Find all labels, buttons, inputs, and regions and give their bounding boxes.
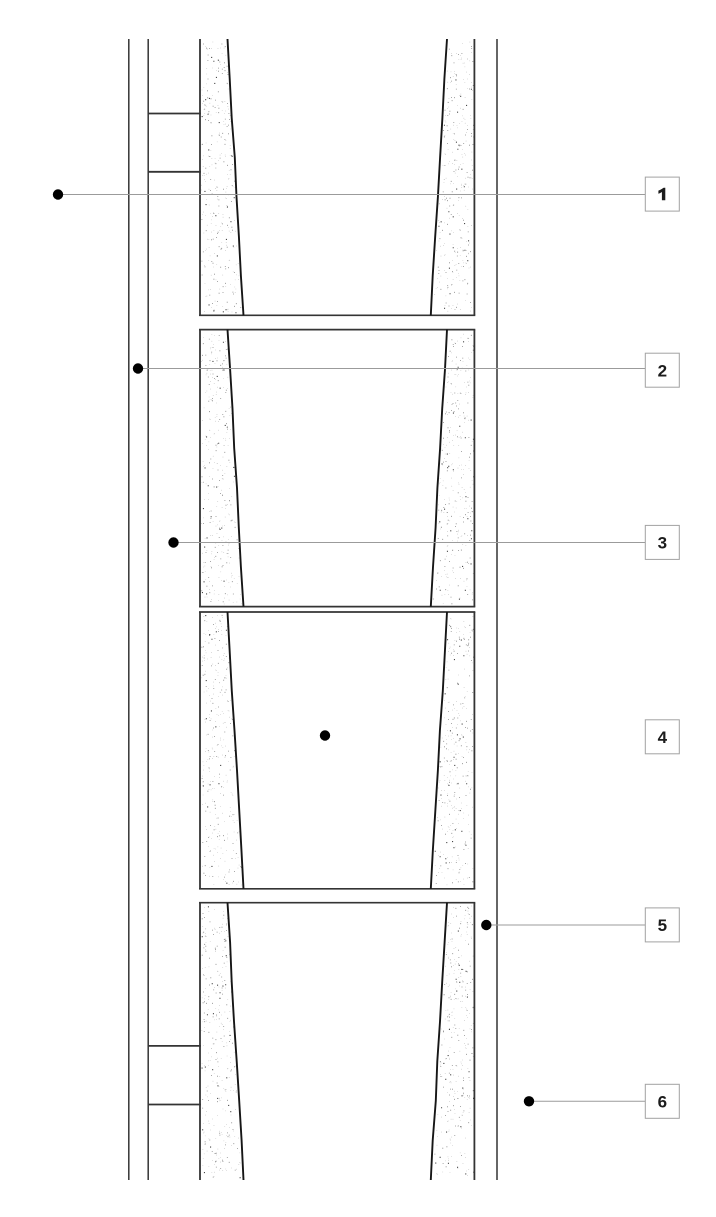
svg-text:3: 3 (658, 534, 667, 553)
svg-text:2: 2 (658, 361, 667, 380)
svg-text:5: 5 (658, 916, 667, 935)
svg-text:6: 6 (658, 1093, 667, 1112)
svg-text:4: 4 (658, 728, 668, 747)
